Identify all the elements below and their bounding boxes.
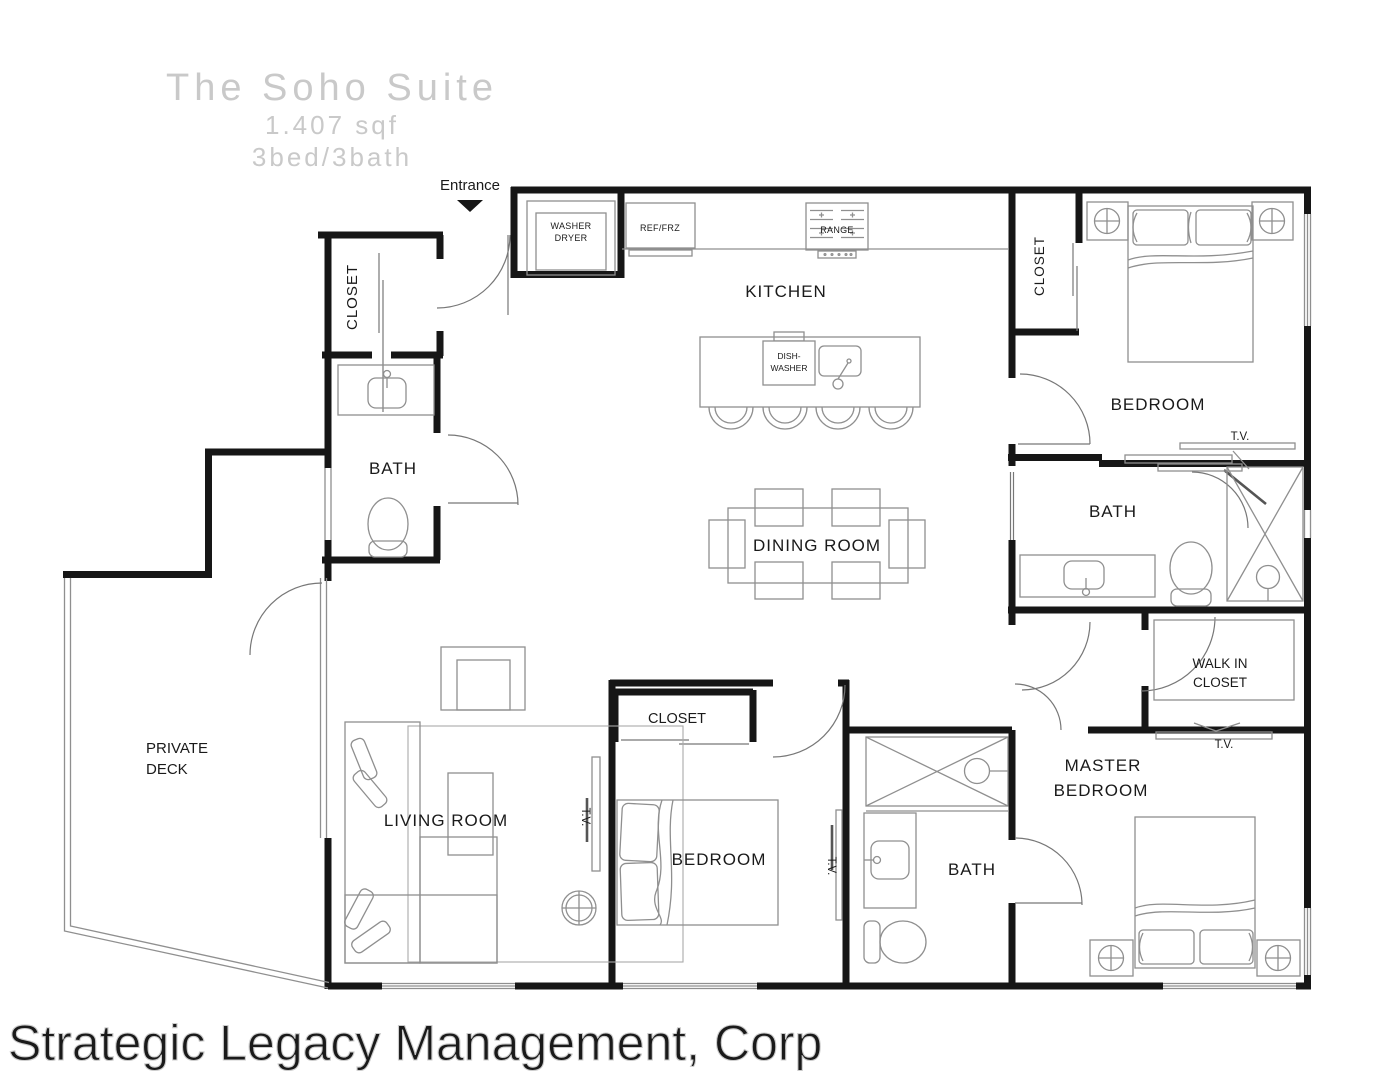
nightstand-right <box>1252 202 1293 240</box>
washer-dryer-label-1: WASHER <box>551 221 592 231</box>
room-label-deck-1: PRIVATE <box>146 740 208 757</box>
room-label-bedroom-top: BEDROOM <box>1111 395 1206 414</box>
tv-label-master: T.V. <box>1215 739 1234 751</box>
vanity <box>864 813 916 908</box>
sectional-sofa <box>343 722 497 963</box>
entrance-arrow-icon <box>457 200 483 212</box>
room-label-master-2: BEDROOM <box>1054 781 1149 800</box>
room-label-walkin-1: WALK IN <box>1192 656 1247 671</box>
washer-dryer-unit: WASHER DRYER <box>527 201 615 275</box>
room-label-deck-2: DECK <box>146 761 188 778</box>
doors <box>250 235 1248 905</box>
kitchen-island: DISH- WASHER <box>700 332 920 429</box>
title-block: The Soho Suite 1.407 sqf 3bed/3bath <box>166 67 498 172</box>
side-table <box>562 891 596 925</box>
room-label-dining: DINING ROOM <box>753 536 881 555</box>
room-label-closet-bedroom-bottom: CLOSET <box>648 711 706 727</box>
tv-label-living: T.V. <box>579 808 591 827</box>
room-label-living: LIVING ROOM <box>384 811 508 830</box>
tv-label-bedroom-top: T.V. <box>1231 431 1250 443</box>
tv-labels: T.V. T.V. T.V. T.V. <box>579 431 1249 875</box>
windows <box>65 214 1311 989</box>
floor-plan-canvas: The Soho Suite 1.407 sqf 3bed/3bath Entr… <box>0 0 1398 1080</box>
room-label-master-1: MASTER <box>1065 756 1142 775</box>
range-label: RANGE <box>820 225 854 235</box>
room-label-closet-bedroom-top: CLOSET <box>1032 236 1047 296</box>
room-label-bath-guest: BATH <box>1089 502 1137 521</box>
refrigerator: REF/FRZ <box>626 203 695 256</box>
vanity <box>1020 555 1155 597</box>
bedroom-top-furniture <box>1087 202 1295 471</box>
bed <box>1135 817 1255 968</box>
plan-area: 1.407 sqf <box>265 110 399 140</box>
nightstand-right <box>1257 940 1300 976</box>
room-label-bath-master: BATH <box>948 860 996 879</box>
room-label-kitchen: KITCHEN <box>745 282 827 301</box>
dishwasher-label-2: WASHER <box>771 363 808 373</box>
room-label-bedroom-bottom: BEDROOM <box>672 850 767 869</box>
island-sink <box>819 346 861 389</box>
nightstand-left <box>1087 202 1128 240</box>
kitchen-fixtures: WASHER DRYER REF/FRZ RANGE DISH- WASHER <box>527 201 1008 429</box>
tv-label-bedroom-bottom: T.V. <box>825 857 837 876</box>
guest-bath-fixtures <box>1020 467 1303 606</box>
room-label-walkin-2: CLOSET <box>1193 675 1247 690</box>
ref-frz-label: REF/FRZ <box>640 223 680 233</box>
rug <box>408 726 683 962</box>
watermark: Strategic Legacy Management, Corp <box>8 1015 822 1071</box>
plan-title: The Soho Suite <box>166 67 498 109</box>
entrance-marker: Entrance <box>440 177 500 212</box>
plan-bed-bath: 3bed/3bath <box>252 142 412 172</box>
dishwasher-label-1: DISH- <box>777 351 800 361</box>
master-bath-fixtures <box>864 737 1008 963</box>
bed <box>1128 206 1253 362</box>
toilet <box>864 921 926 963</box>
shower <box>1227 467 1303 601</box>
room-labels: KITCHEN DINING ROOM LIVING ROOM BEDROOM … <box>146 236 1248 879</box>
bar-stools <box>709 407 913 429</box>
room-label-closet-entry: CLOSET <box>344 264 361 330</box>
armchair <box>441 647 525 710</box>
walls <box>63 187 1311 990</box>
entrance-label: Entrance <box>440 177 500 194</box>
toilet <box>1170 542 1212 606</box>
nightstand-left <box>1090 940 1133 976</box>
room-label-bath-entry: BATH <box>369 459 417 478</box>
shower <box>866 737 1008 811</box>
toilet <box>368 498 408 557</box>
washer-dryer-label-2: DRYER <box>555 233 588 243</box>
range: RANGE <box>806 203 868 258</box>
